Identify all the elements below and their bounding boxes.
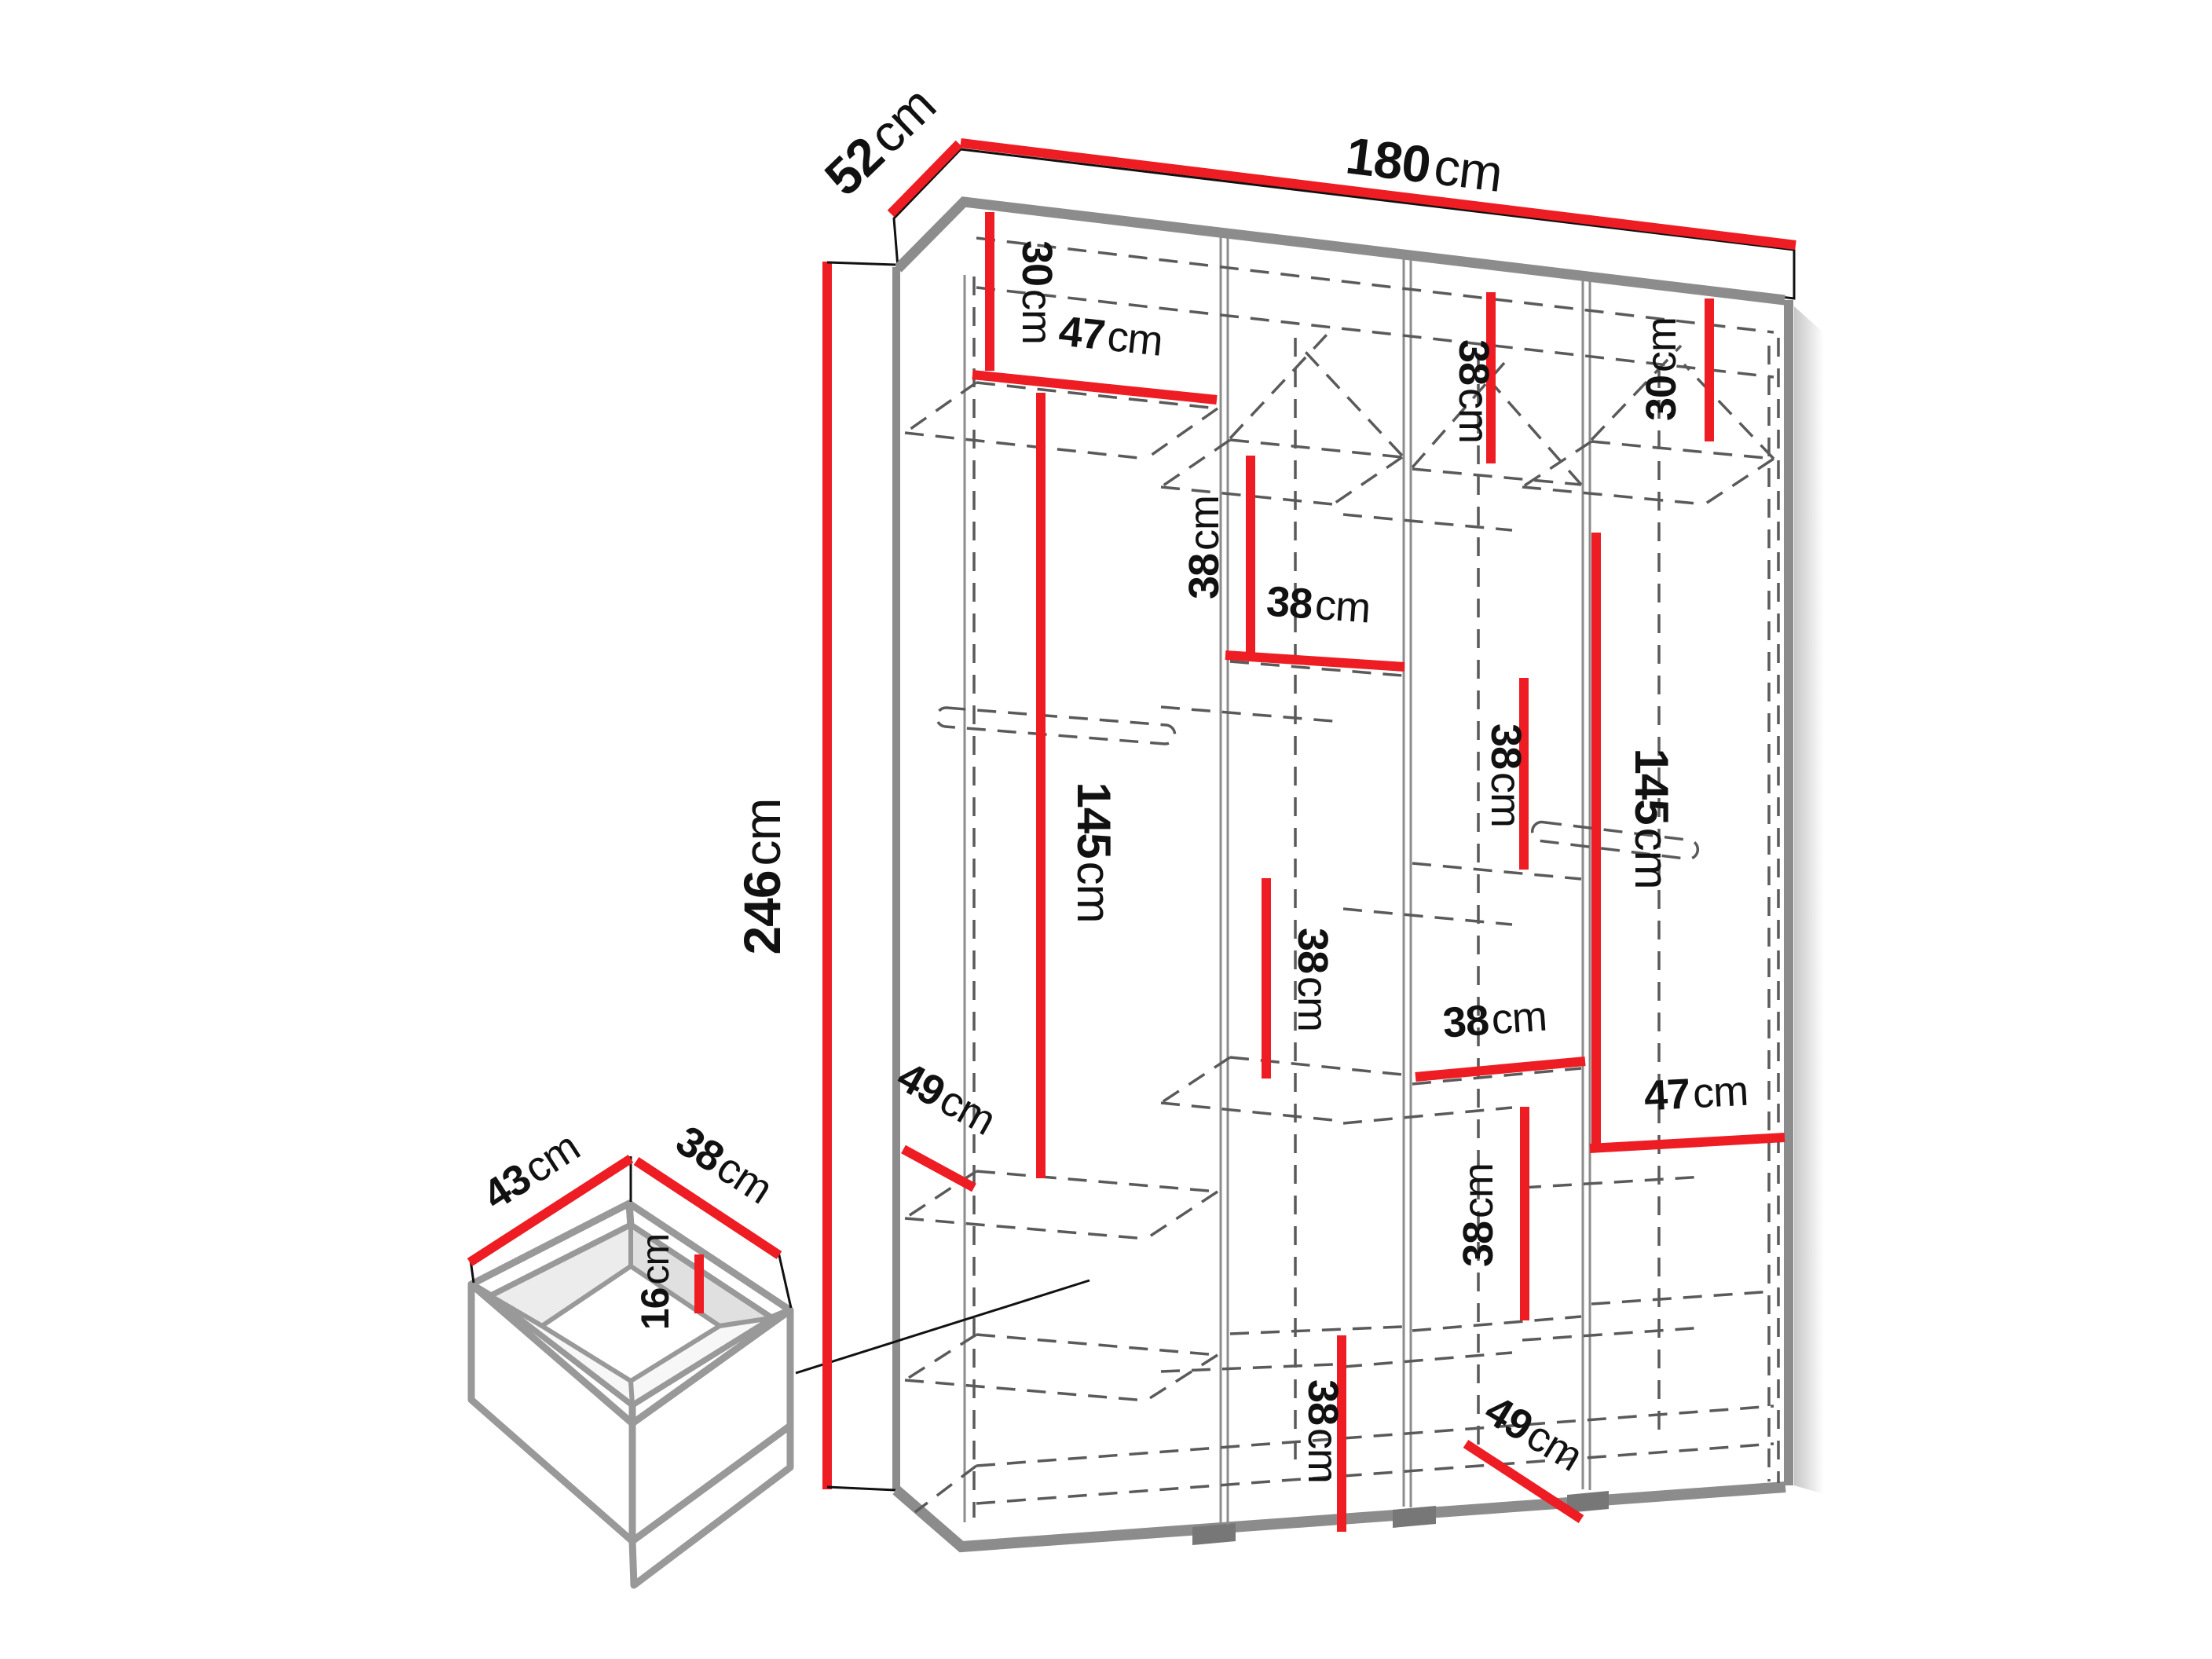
- dim-line-col4-47: [1590, 1137, 1785, 1148]
- height-tick-top: [827, 262, 895, 265]
- dim-label-col1-47cm: 47cm: [1057, 307, 1165, 364]
- drawer-detail: [471, 1156, 791, 1585]
- dim-line-col3-38-shelf: [1415, 1061, 1585, 1077]
- height-tick-bottom: [827, 1487, 895, 1490]
- dim-label-col2-38cm-bottom: 38cm: [1299, 1379, 1346, 1483]
- dim-label-col2-38cm-shelf: 38cm: [1265, 578, 1372, 632]
- hanging-rod-col1: [936, 707, 1176, 745]
- furniture-dimension-diagram: 180cm 52cm 246cm 30cm 47cm 145cm 49cm 38…: [0, 0, 2212, 1659]
- dim-line-col2-38-shelf: [1225, 655, 1404, 667]
- dim-label-col3-38cm-shelf: 38cm: [1441, 993, 1548, 1047]
- dim-label-col4-47cm: 47cm: [1643, 1068, 1749, 1120]
- dim-label-col1-30cm: 30cm: [1013, 240, 1060, 344]
- dim-label-col1-49cm: 49cm: [889, 1053, 1003, 1144]
- dim-label-height-246cm: 246cm: [733, 798, 791, 954]
- dim-label-col4-30cm: 30cm: [1638, 317, 1685, 421]
- dim-label-col1-145cm: 145cm: [1068, 782, 1120, 922]
- dim-label-col2-38cm-middle: 38cm: [1289, 928, 1336, 1031]
- dim-label-col2-38cm-upper: 38cm: [1181, 496, 1228, 599]
- dim-label-col3-38cm-top: 38cm: [1450, 339, 1497, 443]
- wardrobe-foot: [1393, 1506, 1436, 1528]
- drawer-pointer-line: [796, 1280, 1090, 1373]
- dim-label-col3-38cm-mid: 38cm: [1482, 723, 1529, 827]
- wardrobe-right-shadow: [1794, 306, 1824, 1494]
- wardrobe-diagram-canvas: 180cm 52cm 246cm 30cm 47cm 145cm 49cm 38…: [0, 0, 2212, 1659]
- dim-label-col3-38cm-low: 38cm: [1455, 1163, 1502, 1267]
- dim-label-drawer-43cm: 43cm: [474, 1123, 587, 1219]
- dim-label-drawer-16cm: 16cm: [633, 1234, 677, 1330]
- dim-label-col4-145cm: 145cm: [1625, 748, 1678, 888]
